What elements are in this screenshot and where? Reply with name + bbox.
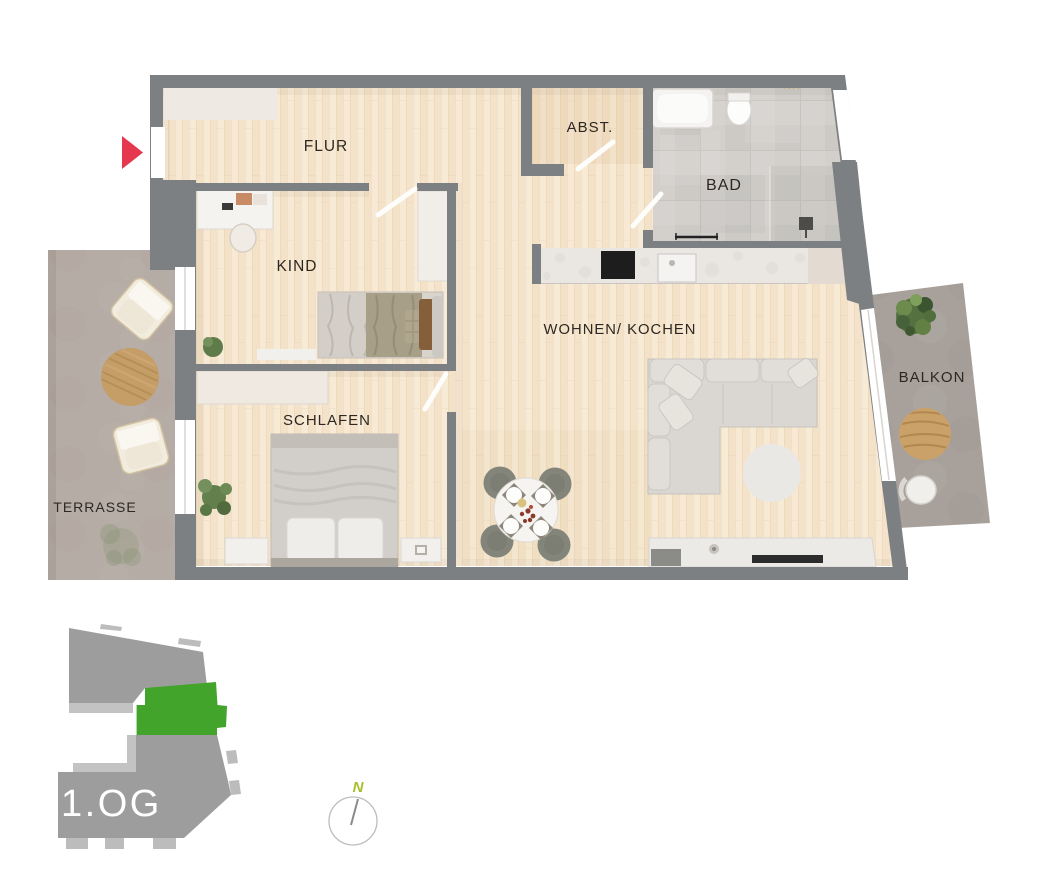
svg-text:WOHNEN/ KOCHEN: WOHNEN/ KOCHEN [544, 322, 697, 338]
svg-text:FLUR: FLUR [304, 138, 348, 155]
svg-text:SCHLAFEN: SCHLAFEN [283, 412, 371, 429]
svg-text:KIND: KIND [276, 258, 317, 275]
svg-text:BALKON: BALKON [899, 369, 966, 386]
svg-text:N: N [353, 779, 365, 796]
svg-text:BAD: BAD [706, 177, 742, 194]
svg-text:1.OG: 1.OG [61, 783, 162, 825]
svg-text:TERRASSE: TERRASSE [53, 499, 136, 515]
svg-text:ABST.: ABST. [567, 119, 614, 136]
